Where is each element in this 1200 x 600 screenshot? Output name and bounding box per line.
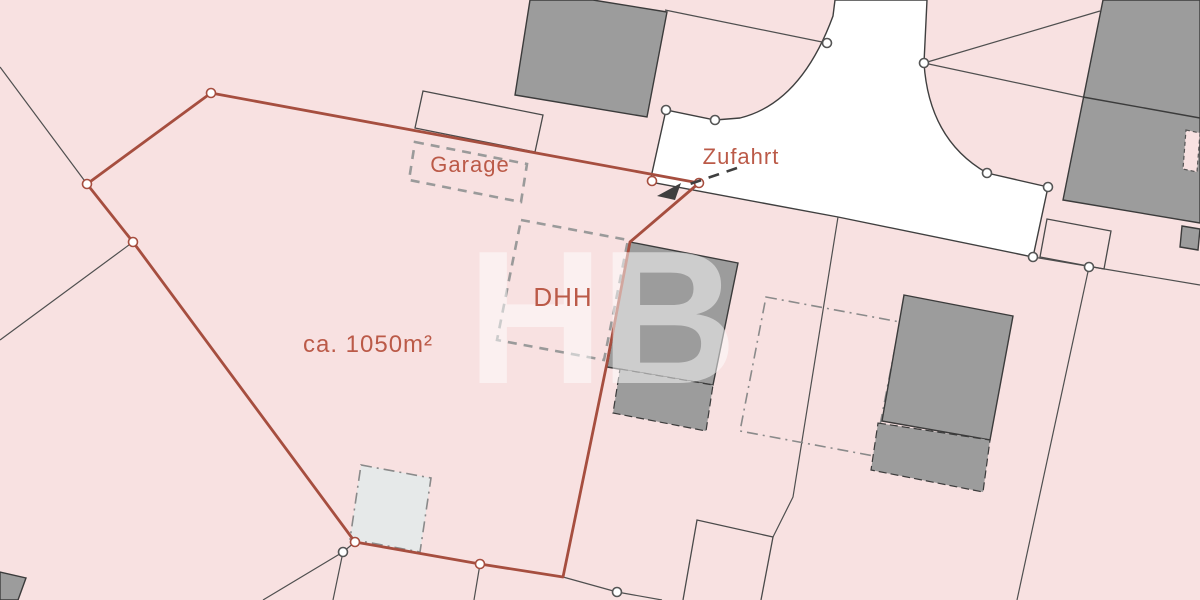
building-right xyxy=(882,295,1013,440)
garage-label: Garage xyxy=(430,152,509,177)
site-plan: HB Garage Zufahrt DHH ca. 1050m² xyxy=(0,0,1200,600)
area-label: ca. 1050m² xyxy=(303,331,433,358)
site-plan-canvas: HB Garage Zufahrt DHH ca. 1050m² xyxy=(0,0,1200,600)
dhh-label: DHH xyxy=(533,282,592,312)
zufahrt-label: Zufahrt xyxy=(703,144,780,169)
building-top-right-annex xyxy=(1180,226,1200,250)
shed-bottom-left xyxy=(350,465,431,552)
watermark-logo: HB xyxy=(467,212,733,424)
building-top-right-notch xyxy=(1183,130,1200,172)
building-top-center xyxy=(515,0,667,117)
